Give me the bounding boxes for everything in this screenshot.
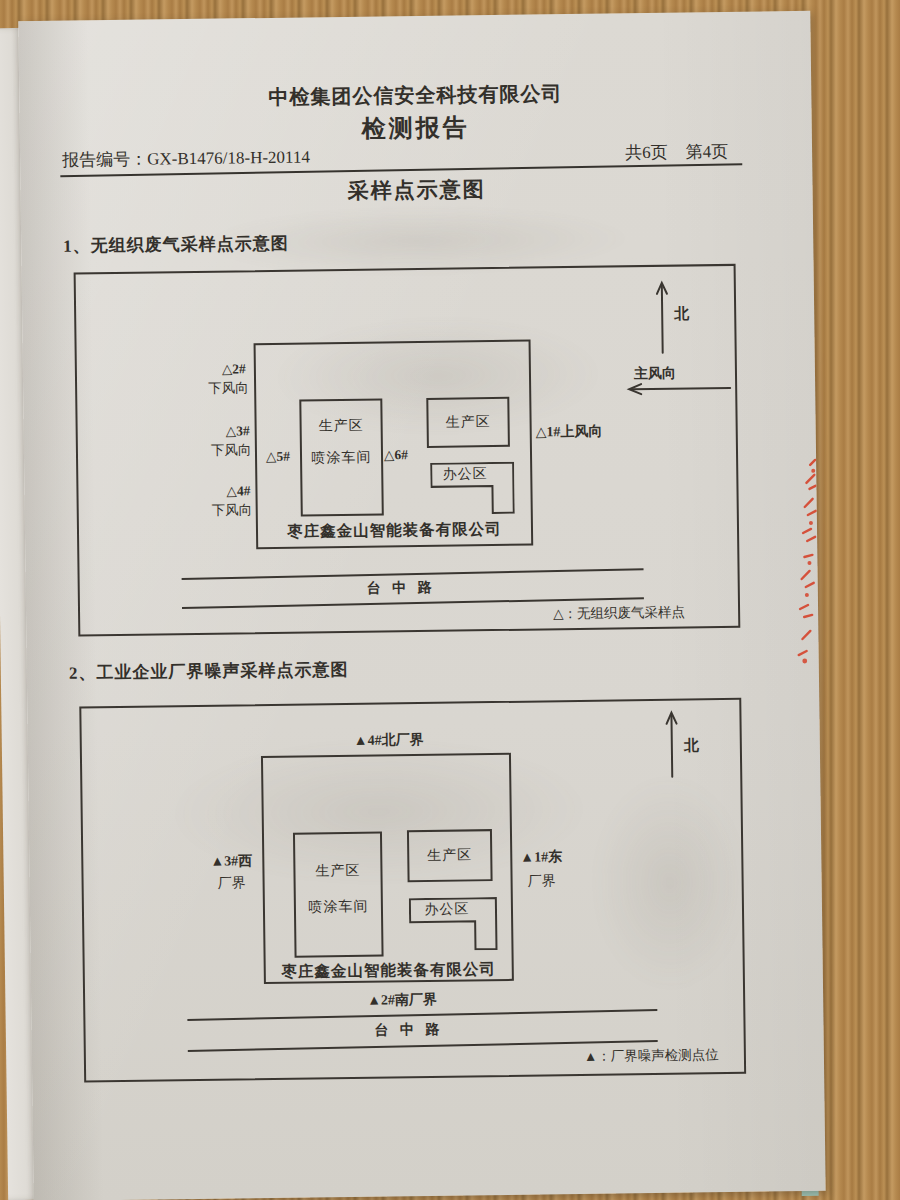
report-number-value: GX-B1476/18-H-20114 bbox=[147, 147, 310, 168]
diagram2-heading: 2、工业企业厂界噪声采样点示意图 bbox=[69, 658, 349, 685]
production-area-label: 生产区 bbox=[428, 413, 507, 432]
production-area-label: 生产区 bbox=[302, 417, 381, 436]
sampling-point-4: △4# bbox=[226, 482, 250, 499]
office-area-label: 办公区 bbox=[419, 900, 475, 919]
pages-total: 共6页 bbox=[625, 143, 668, 163]
spray-workshop-building: 生产区 喷涂车间 bbox=[293, 832, 384, 958]
spray-workshop-building: 生产区 喷涂车间 bbox=[299, 399, 384, 517]
sampling-point-6: △6# bbox=[384, 446, 408, 463]
sampling-point-1-upwind: △1#上风向 bbox=[536, 423, 603, 442]
sampling-point-2: △2# bbox=[222, 360, 246, 377]
road-line-top bbox=[187, 1009, 657, 1021]
noise-point-4-north-boundary: ▲4#北厂界 bbox=[354, 731, 424, 750]
noise-point-2-south-boundary: ▲2#南厂界 bbox=[367, 991, 437, 1010]
report-page: 中检集团公信安全科技有限公司 检测报告 报告编号：GX-B1476/18-H-2… bbox=[18, 11, 825, 1200]
noise-point-3-west-boundary: 厂界 bbox=[217, 874, 245, 892]
sampling-point-3: △3# bbox=[226, 422, 250, 439]
diagram2-boundary-noise: 北 ▲4#北厂界 ▲3#西 厂界 ▲1#东 厂界 生产区 喷涂车间 生产区 办公… bbox=[79, 698, 746, 1083]
page-count: 共6页第4页 bbox=[607, 140, 728, 165]
sampling-point-3-downwind: 下风向 bbox=[211, 441, 252, 460]
spray-workshop-label: 喷涂车间 bbox=[302, 449, 381, 468]
office-building: 办公区 bbox=[409, 897, 497, 949]
north-label: 北 bbox=[684, 736, 699, 755]
north-arrow-icon bbox=[654, 279, 671, 355]
diagram2-legend: ▲：厂界噪声检测点位 bbox=[584, 1046, 719, 1066]
sampling-point-4-downwind: 下风向 bbox=[212, 501, 253, 520]
noise-point-3-west: ▲3#西 bbox=[210, 852, 252, 871]
noise-point-1-east-boundary: 厂界 bbox=[527, 872, 555, 890]
production-building: 生产区 bbox=[426, 397, 510, 448]
production-area-label: 生产区 bbox=[295, 862, 380, 881]
north-arrow-icon bbox=[663, 709, 680, 779]
production-area-label: 生产区 bbox=[409, 846, 490, 865]
section-title: 采样点示意图 bbox=[40, 171, 792, 209]
spray-workshop-label: 喷涂车间 bbox=[296, 898, 381, 917]
wind-direction-arrow-icon bbox=[624, 381, 732, 396]
production-building: 生产区 bbox=[407, 829, 493, 882]
diagram1-heading: 1、无组织废气采样点示意图 bbox=[63, 232, 289, 258]
office-building: 办公区 bbox=[430, 462, 513, 513]
report-number-label: 报告编号： bbox=[62, 150, 147, 170]
road-name: 台 中 路 bbox=[374, 1021, 443, 1040]
road-name: 台 中 路 bbox=[367, 579, 436, 598]
sampling-point-5: △5# bbox=[266, 448, 290, 465]
wind-direction-label: 主风向 bbox=[634, 365, 676, 384]
pages-current: 第4页 bbox=[685, 142, 728, 162]
red-stamp-fragments bbox=[790, 459, 821, 669]
diagram1-legend: △：无组织废气采样点 bbox=[553, 604, 685, 624]
factory-company-name: 枣庄鑫金山智能装备有限公司 bbox=[264, 959, 514, 983]
sampling-point-2-downwind: 下风向 bbox=[208, 379, 249, 398]
diagram1-waste-gas: 北 主风向 生产区 喷涂车间 生产区 办公区 △5# △6# △1#上风向 bbox=[74, 264, 741, 637]
noise-point-1-east: ▲1#东 bbox=[520, 848, 562, 867]
north-label: 北 bbox=[674, 304, 689, 323]
report-number: 报告编号：GX-B1476/18-H-20114 bbox=[62, 145, 310, 171]
office-area-label: 办公区 bbox=[438, 465, 492, 484]
factory-company-name: 枣庄鑫金山智能装备有限公司 bbox=[256, 519, 533, 544]
